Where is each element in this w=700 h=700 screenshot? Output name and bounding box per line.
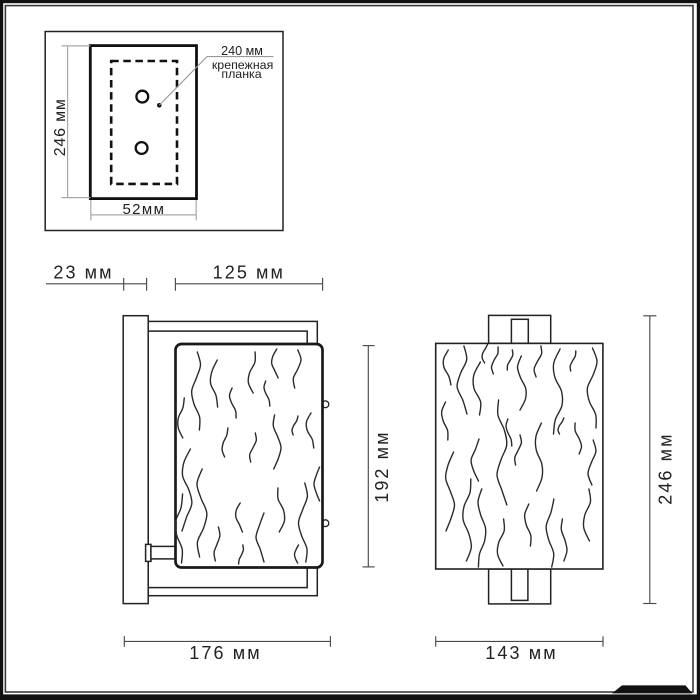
svg-text:143 мм: 143 мм <box>485 643 557 663</box>
svg-text:планка: планка <box>221 67 261 81</box>
svg-text:192 мм: 192 мм <box>372 430 392 502</box>
svg-text:23 мм: 23 мм <box>53 263 113 283</box>
svg-text:240 мм: 240 мм <box>221 44 263 58</box>
svg-text:246 мм: 246 мм <box>656 432 676 504</box>
svg-text:125 мм: 125 мм <box>213 263 285 283</box>
svg-text:246 мм: 246 мм <box>52 98 69 156</box>
svg-text:52мм: 52мм <box>122 201 165 218</box>
svg-text:176 мм: 176 мм <box>189 643 261 663</box>
